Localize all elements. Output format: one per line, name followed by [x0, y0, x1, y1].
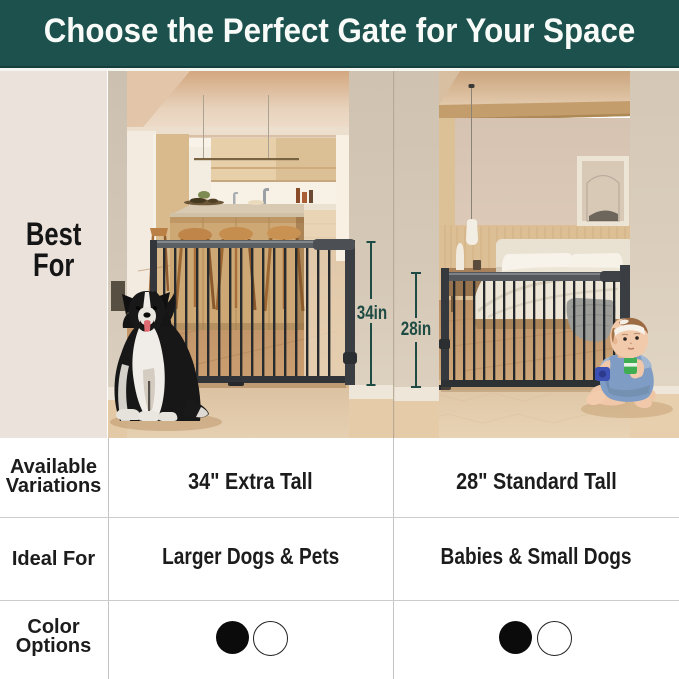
svg-text:28in: 28in: [401, 317, 431, 339]
svg-text:34in: 34in: [357, 301, 387, 323]
